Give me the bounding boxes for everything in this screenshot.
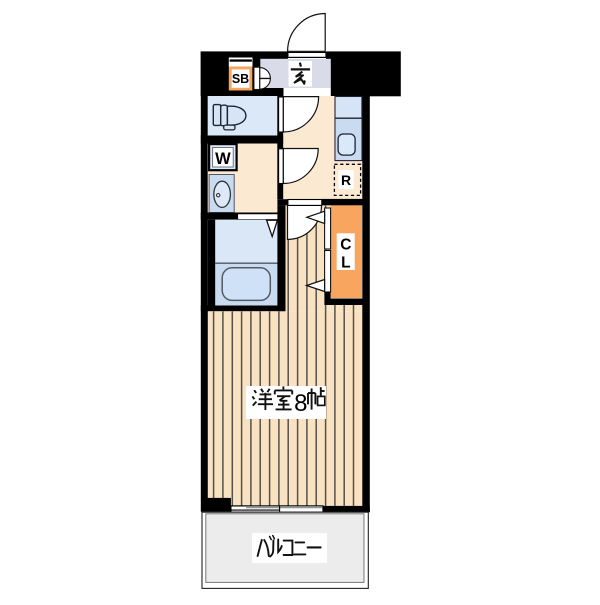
svg-text:C: C xyxy=(340,237,351,254)
svg-text:8: 8 xyxy=(294,390,307,417)
svg-text:L: L xyxy=(341,255,350,272)
svg-text:R: R xyxy=(341,172,351,188)
svg-text:W: W xyxy=(215,150,231,168)
svg-text:SB: SB xyxy=(232,72,249,86)
